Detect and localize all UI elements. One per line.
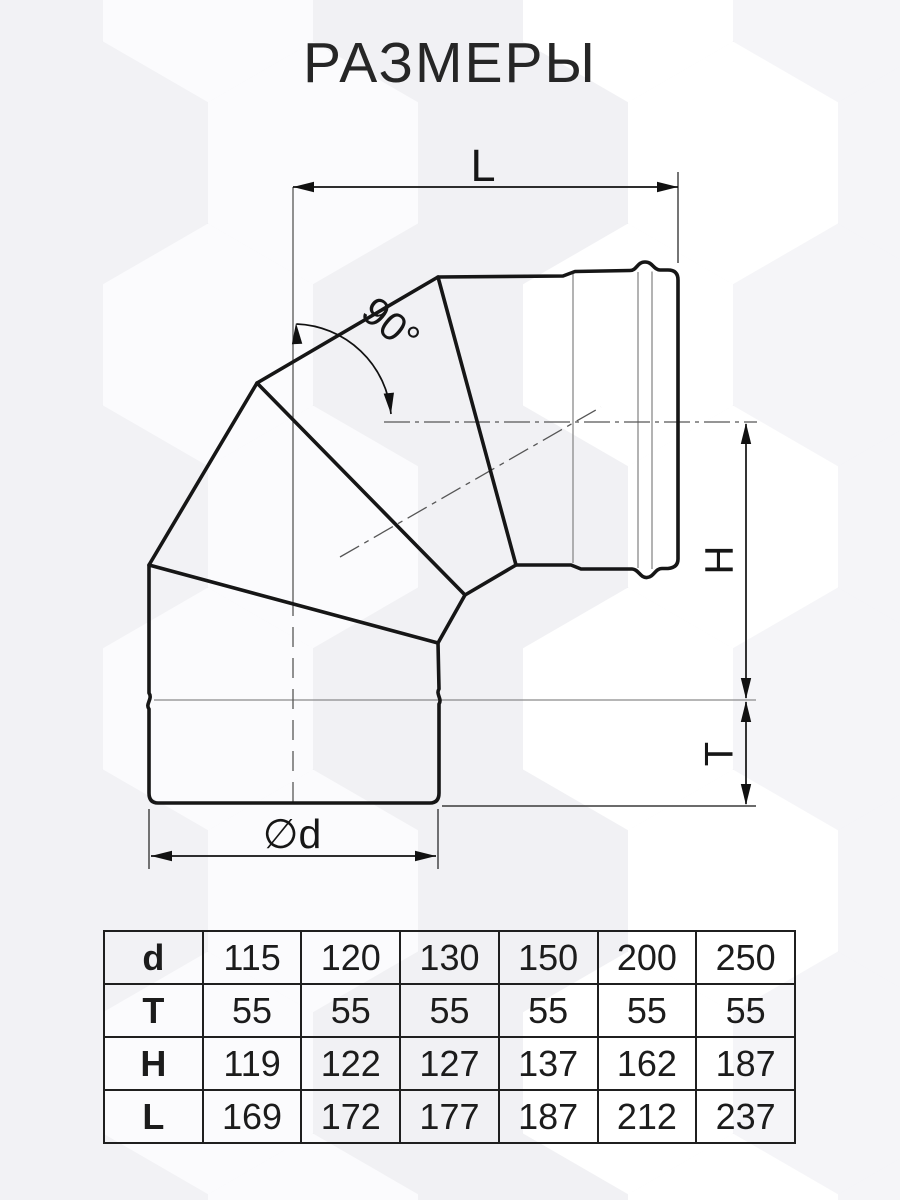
table-cell: 115: [203, 931, 302, 984]
table-cell: 55: [400, 984, 499, 1037]
label-diameter: ∅d: [263, 811, 322, 857]
dimension-labels: L 90° H T ∅d: [263, 140, 742, 857]
table-cell: 119: [203, 1037, 302, 1090]
dimension-arrowheads: [151, 182, 751, 861]
table-cell: 120: [301, 931, 400, 984]
table-cell: 55: [696, 984, 795, 1037]
table-cell: 55: [499, 984, 598, 1037]
table-cell: 55: [203, 984, 302, 1037]
table-row-t: T 55 55 55 55 55 55: [104, 984, 795, 1037]
table-cell: 150: [499, 931, 598, 984]
table-cell: 169: [203, 1090, 302, 1143]
row-header-l: L: [104, 1090, 203, 1143]
label-socket-depth: T: [698, 742, 742, 766]
dimension-lines: [151, 187, 746, 856]
row-header-h: H: [104, 1037, 203, 1090]
label-height: H: [698, 546, 742, 575]
label-length: L: [470, 140, 495, 191]
table-cell: 130: [400, 931, 499, 984]
table-cell: 122: [301, 1037, 400, 1090]
table-row-d: d 115 120 130 150 200 250: [104, 931, 795, 984]
table-cell: 177: [400, 1090, 499, 1143]
table-row-h: H 119 122 127 137 162 187: [104, 1037, 795, 1090]
table-cell: 187: [696, 1037, 795, 1090]
table-cell: 127: [400, 1037, 499, 1090]
table-cell: 212: [598, 1090, 697, 1143]
page: РАЗМЕРЫ: [0, 0, 900, 1200]
label-angle: 90°: [353, 289, 428, 362]
table-cell: 162: [598, 1037, 697, 1090]
table-cell: 55: [598, 984, 697, 1037]
table-cell: 200: [598, 931, 697, 984]
page-title: РАЗМЕРЫ: [0, 30, 900, 96]
segment-seam-2: [257, 383, 465, 595]
table-cell: 55: [301, 984, 400, 1037]
dimensions-table: d 115 120 130 150 200 250 T 55 55 55 55 …: [103, 930, 796, 1144]
table-cell: 250: [696, 931, 795, 984]
table-cell: 187: [499, 1090, 598, 1143]
row-header-t: T: [104, 984, 203, 1037]
table-cell: 237: [696, 1090, 795, 1143]
row-header-d: d: [104, 931, 203, 984]
table-row-l: L 169 172 177 187 212 237: [104, 1090, 795, 1143]
segment-seam-1: [438, 277, 516, 565]
table-cell: 137: [499, 1037, 598, 1090]
center-lines: [293, 187, 757, 812]
table-cell: 172: [301, 1090, 400, 1143]
